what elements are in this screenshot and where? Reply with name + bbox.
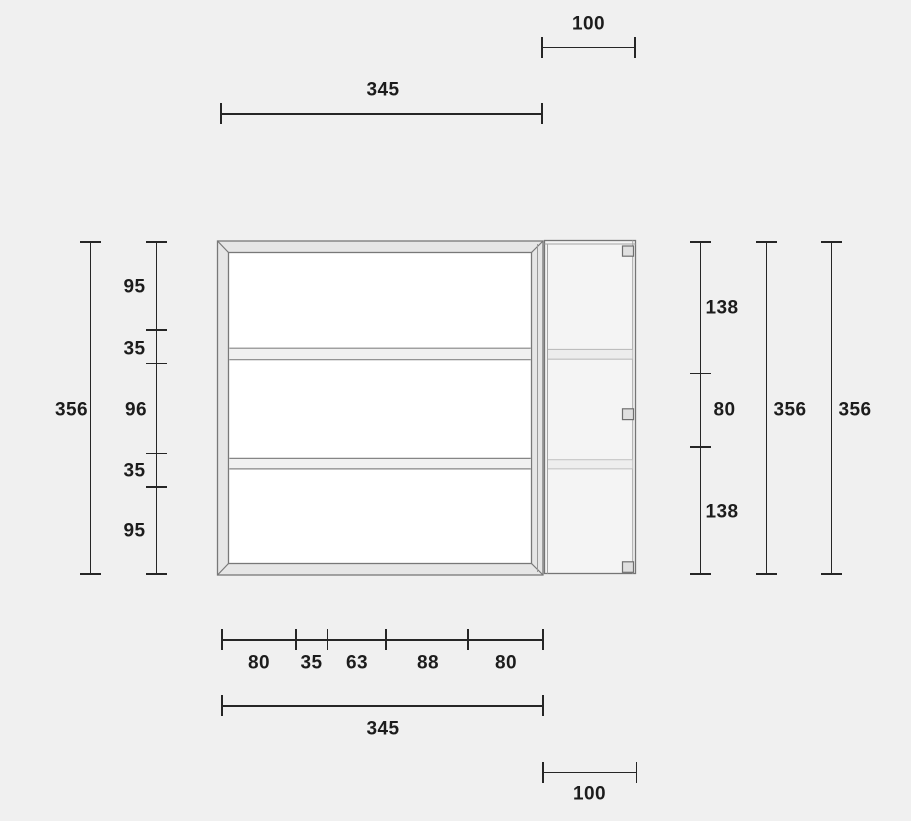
dim-label-bottom-segment-1: 35: [301, 654, 323, 673]
dim-label-left-segment-4: 95: [124, 522, 146, 541]
dim-line-top-side-width: [542, 47, 635, 49]
dim-line-right-height-inner: [766, 242, 768, 574]
dim-label-bottom-segment-2: 63: [346, 654, 368, 673]
dim-label-left-segment-0: 95: [124, 278, 146, 297]
dim-label-left-segment-1: 35: [124, 339, 146, 358]
dim-tick: [221, 629, 223, 650]
dim-tick: [690, 373, 711, 375]
dim-label-right-height-inner: 356: [774, 400, 807, 419]
dim-tick: [146, 363, 167, 365]
dim-tick: [542, 629, 544, 650]
dim-tick: [690, 446, 711, 448]
dim-tick: [541, 103, 543, 124]
dim-label-right-segment-2: 138: [706, 502, 739, 521]
dim-label-bottom-main-width: 345: [367, 719, 400, 738]
dim-tick: [146, 453, 167, 455]
dim-tick: [634, 37, 636, 58]
dim-label-bottom-segment-3: 88: [417, 654, 439, 673]
dim-line-right-segments: [700, 242, 702, 574]
dim-label-left-segment-2: 96: [125, 401, 147, 420]
dim-tick: [542, 762, 544, 783]
dim-label-bottom-side-width: 100: [573, 784, 606, 803]
dim-tick: [636, 762, 638, 783]
dim-tick: [756, 241, 777, 243]
dim-line-top-main-width: [221, 113, 542, 115]
dim-tick: [541, 37, 543, 58]
cabinet-interior: [229, 253, 532, 564]
hinge-top: [623, 246, 634, 256]
dim-label-left-overall-height: 356: [55, 400, 88, 419]
dim-tick: [220, 103, 222, 124]
dim-line-bottom-segments: [222, 639, 543, 641]
dim-tick: [385, 629, 387, 650]
dim-tick: [295, 629, 297, 650]
shelf-lower: [229, 459, 531, 469]
door-shelf-band-lower: [548, 460, 633, 469]
dim-tick: [690, 573, 711, 575]
hinge-middle: [623, 409, 634, 420]
dim-tick: [146, 573, 167, 575]
dim-line-bottom-main-width: [222, 705, 543, 707]
hinge-bottom: [623, 562, 634, 573]
technical-drawing-canvas: 100 345 356 95 35 96 35 95 138 80 138 35…: [0, 0, 911, 821]
dim-line-left-segments: [156, 242, 158, 574]
dim-label-right-segment-0: 138: [706, 299, 739, 318]
dim-line-right-height-outer: [831, 242, 833, 574]
dim-tick: [756, 573, 777, 575]
dim-tick: [221, 695, 223, 716]
dim-tick: [327, 629, 329, 650]
dim-tick: [80, 573, 101, 575]
dim-tick: [146, 329, 167, 331]
dim-tick: [80, 241, 101, 243]
dim-label-top-main-width: 345: [367, 80, 400, 99]
dim-tick: [821, 241, 842, 243]
dim-label-right-segment-1: 80: [714, 401, 736, 420]
dim-tick: [146, 241, 167, 243]
dim-label-right-height-outer: 356: [839, 400, 872, 419]
door-shelf-band-upper: [548, 350, 633, 360]
dim-label-bottom-segment-4: 80: [495, 654, 517, 673]
dim-tick: [542, 695, 544, 716]
side-door: [545, 241, 636, 574]
dim-tick: [690, 241, 711, 243]
dim-line-left-overall-height: [90, 242, 92, 574]
dim-tick: [467, 629, 469, 650]
dim-line-bottom-side-width: [543, 772, 637, 774]
dim-tick: [821, 573, 842, 575]
dim-tick: [146, 486, 167, 488]
dim-label-left-segment-3: 35: [124, 461, 146, 480]
dim-label-bottom-segment-0: 80: [248, 654, 270, 673]
dim-label-top-side-width: 100: [572, 15, 605, 34]
shelf-upper: [229, 348, 531, 359]
